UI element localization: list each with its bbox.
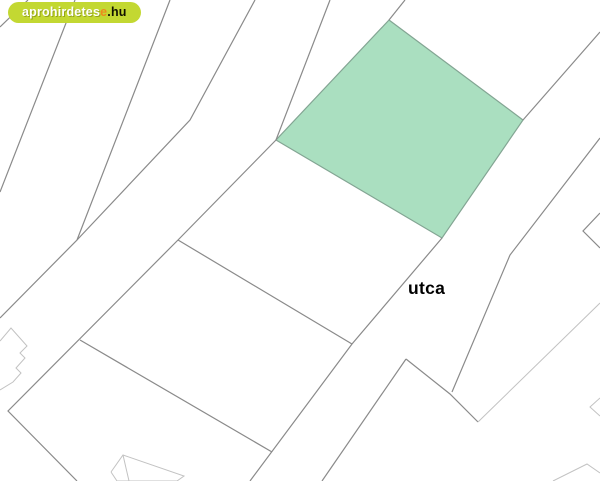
- aprohirdetes-logo[interactable]: aprohirdetese.hu: [8, 2, 141, 23]
- parcel-peak-bottom-right: [553, 464, 600, 481]
- boundary-main-diagonal: [8, 140, 276, 481]
- boundary-cross-lower: [80, 340, 272, 452]
- boundary-long-left: [0, 0, 170, 318]
- street-label: utca: [408, 278, 445, 299]
- logo-text-main: aprohirdetes: [22, 2, 100, 23]
- cadastral-map: [0, 0, 600, 481]
- boundary-parcel-top-extension: [389, 0, 405, 20]
- street-west-edge: [250, 238, 442, 481]
- highlighted-parcel: [276, 20, 523, 238]
- boundary-cross-upper: [178, 240, 352, 344]
- building-footprint-bottom: [111, 455, 184, 481]
- building-footprint-bottom-inner: [123, 455, 129, 481]
- parcel-edge-southeast: [478, 303, 600, 422]
- logo-text-domain: .hu: [107, 2, 126, 23]
- boundary-behind-logo: [0, 0, 75, 192]
- notch-right-top: [583, 213, 600, 248]
- street-east-edge-lower: [322, 359, 406, 481]
- street-northeast-west-edge: [523, 32, 600, 120]
- boundary-upper-left-mid: [77, 0, 255, 240]
- cadastral-map-page: aprohirdetese.hu utca: [0, 0, 600, 481]
- notch-right-middle: [590, 398, 600, 416]
- parcel-corner-southeast: [406, 359, 478, 422]
- building-footprint-left: [0, 328, 27, 390]
- logo-text-accent: e: [100, 2, 107, 23]
